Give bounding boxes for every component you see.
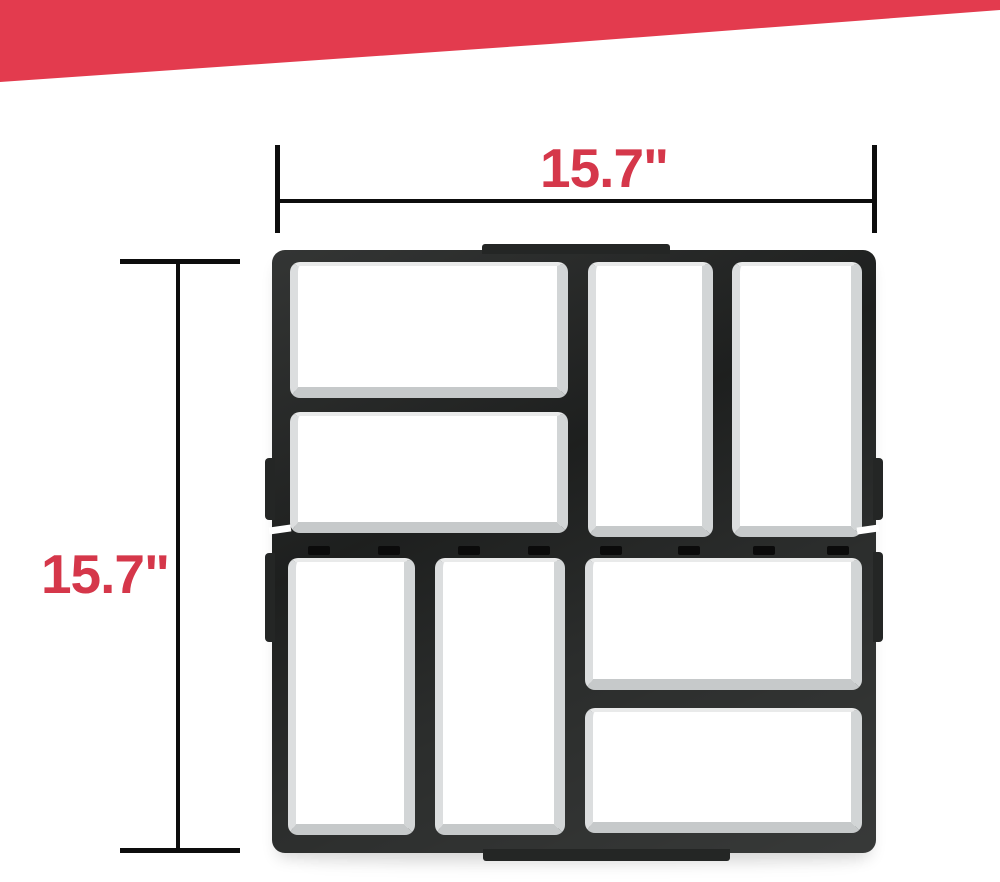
mold-cell-bottom-left xyxy=(288,558,415,835)
mold-rail-slot xyxy=(678,546,700,555)
width-dimension-right-tick xyxy=(872,145,877,233)
product-dimension-image: 15.7" 15.7" xyxy=(0,0,1000,882)
mold-cell-top-left-upper xyxy=(290,262,568,398)
mold-right-clip-upper xyxy=(873,458,883,520)
width-dimension-left-tick xyxy=(275,145,280,233)
mold-cell-bottom-right-upper xyxy=(585,558,862,690)
mold-bottom-tab xyxy=(483,849,730,861)
mold-right-clip-lower xyxy=(873,552,883,642)
mold-cell-top-middle xyxy=(588,262,713,537)
mold-cell-top-left-lower xyxy=(290,412,568,533)
mold-rail-slot xyxy=(378,546,400,555)
mold-rail-slot xyxy=(458,546,480,555)
mold-left-clip-upper xyxy=(265,458,275,520)
mold-rail-slot xyxy=(308,546,330,555)
width-dimension-label: 15.7" xyxy=(540,136,668,200)
mold-rail-slot xyxy=(528,546,550,555)
mold-top-tab xyxy=(482,244,670,254)
paver-mold xyxy=(272,250,876,853)
mold-cell-bottom-middle xyxy=(435,558,565,835)
mold-right-seam-gap xyxy=(857,525,880,535)
mold-left-seam-gap xyxy=(269,525,292,535)
red-banner xyxy=(0,0,1000,82)
mold-cell-top-right xyxy=(732,262,862,537)
height-dimension-label: 15.7" xyxy=(35,542,175,606)
mold-rail-slot xyxy=(753,546,775,555)
height-dimension-bottom-tick xyxy=(120,848,240,853)
height-dimension-line xyxy=(176,262,180,852)
mold-cell-bottom-right-lower xyxy=(585,708,862,833)
height-dimension-top-tick xyxy=(120,259,240,264)
mold-rail-slot xyxy=(600,546,622,555)
mold-rail-slot xyxy=(827,546,849,555)
mold-left-clip-lower xyxy=(265,553,275,642)
